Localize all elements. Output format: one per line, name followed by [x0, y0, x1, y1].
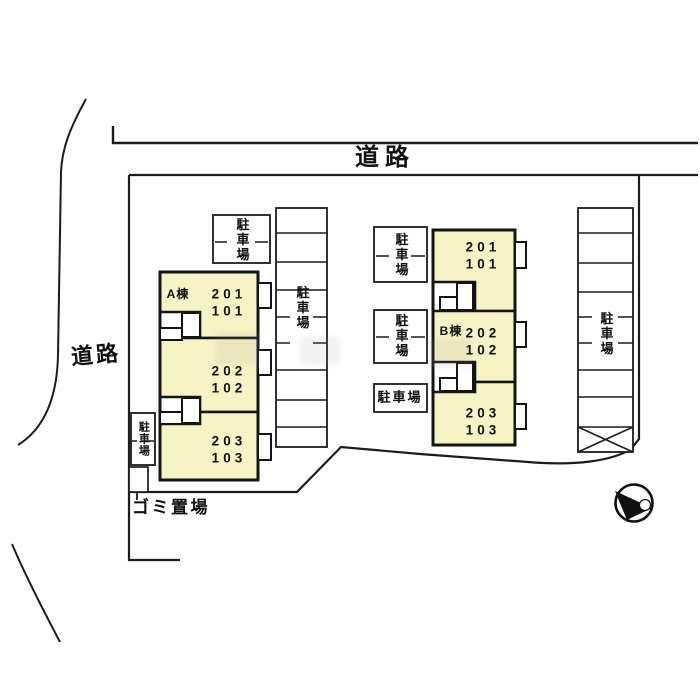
unit-lower-number: 102 [212, 380, 247, 397]
top-road-north-edge-line [113, 126, 698, 143]
building-b-name: B棟 [440, 325, 463, 339]
parking-label-b-row-2: 駐車場 [393, 314, 408, 359]
unit-upper-number: 203 [466, 405, 501, 422]
left-road-outer-edge-bottom-line [12, 544, 60, 642]
unit-lower-number: 102 [466, 342, 501, 359]
stair-box [440, 297, 457, 310]
left-road-outer-edge-line [18, 99, 86, 445]
watermark-smudge [300, 336, 340, 366]
parking-label-a-left: 駐車場 [137, 421, 150, 457]
unit-lower-number: 101 [466, 256, 501, 273]
stair-box [160, 328, 182, 340]
stair-box [440, 378, 457, 391]
road-label-top: 道路 [355, 144, 415, 172]
unit-upper-number: 202 [466, 325, 501, 342]
building-b-unit-3-label: 203103 [466, 371, 501, 472]
site-plan: 道路 道路 駐車場 駐車場 駐車場 駐車場 駐車場 駐車場 駐車場 A棟 B棟 … [0, 0, 700, 700]
unit-lower-number: 103 [212, 450, 247, 467]
balcony-box [258, 434, 271, 460]
north-arrow-icon [615, 485, 653, 522]
garbage-area-label: ゴミ置場 [132, 498, 210, 518]
stair-box [160, 412, 182, 424]
unit-upper-number: 201 [466, 239, 501, 256]
balcony-box [258, 283, 271, 308]
stair-box [182, 313, 200, 337]
garbage-area-box [129, 467, 148, 492]
parking-label-b-row-1: 駐車場 [393, 233, 408, 278]
road-label-left: 道路 [70, 340, 122, 370]
parking-label-right-column: 駐車場 [598, 312, 613, 357]
parking-label-b-row-3: 駐車場 [377, 391, 422, 406]
balcony-box [515, 404, 526, 429]
parking-label-center-column: 駐車場 [294, 286, 309, 331]
balcony-box [515, 242, 526, 268]
building-a-unit-3-label: 203103 [212, 399, 247, 500]
stair-box [182, 398, 200, 423]
unit-upper-number: 202 [212, 363, 247, 380]
unit-lower-number: 103 [466, 422, 501, 439]
unit-upper-number: 203 [212, 433, 247, 450]
balcony-box [515, 322, 526, 347]
unit-upper-number: 201 [212, 286, 247, 303]
unit-lower-number: 101 [212, 303, 247, 320]
building-a-name: A棟 [167, 288, 190, 302]
